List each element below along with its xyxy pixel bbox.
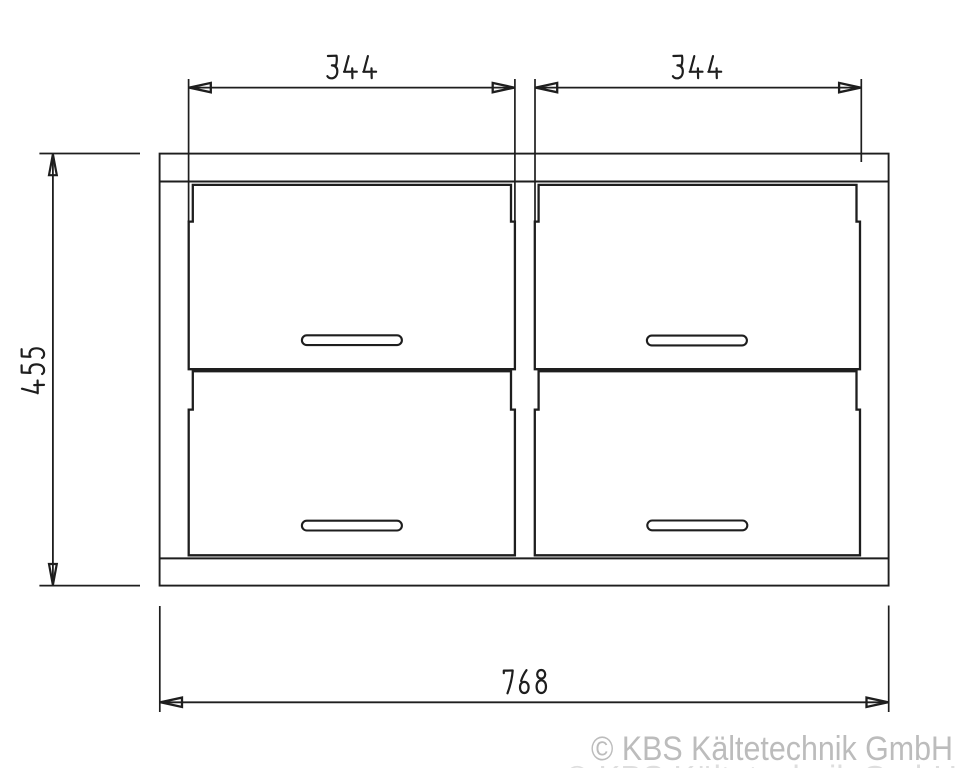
- svg-text:© KBS Kältetechnik GmbH: © KBS Kältetechnik GmbH: [565, 760, 957, 769]
